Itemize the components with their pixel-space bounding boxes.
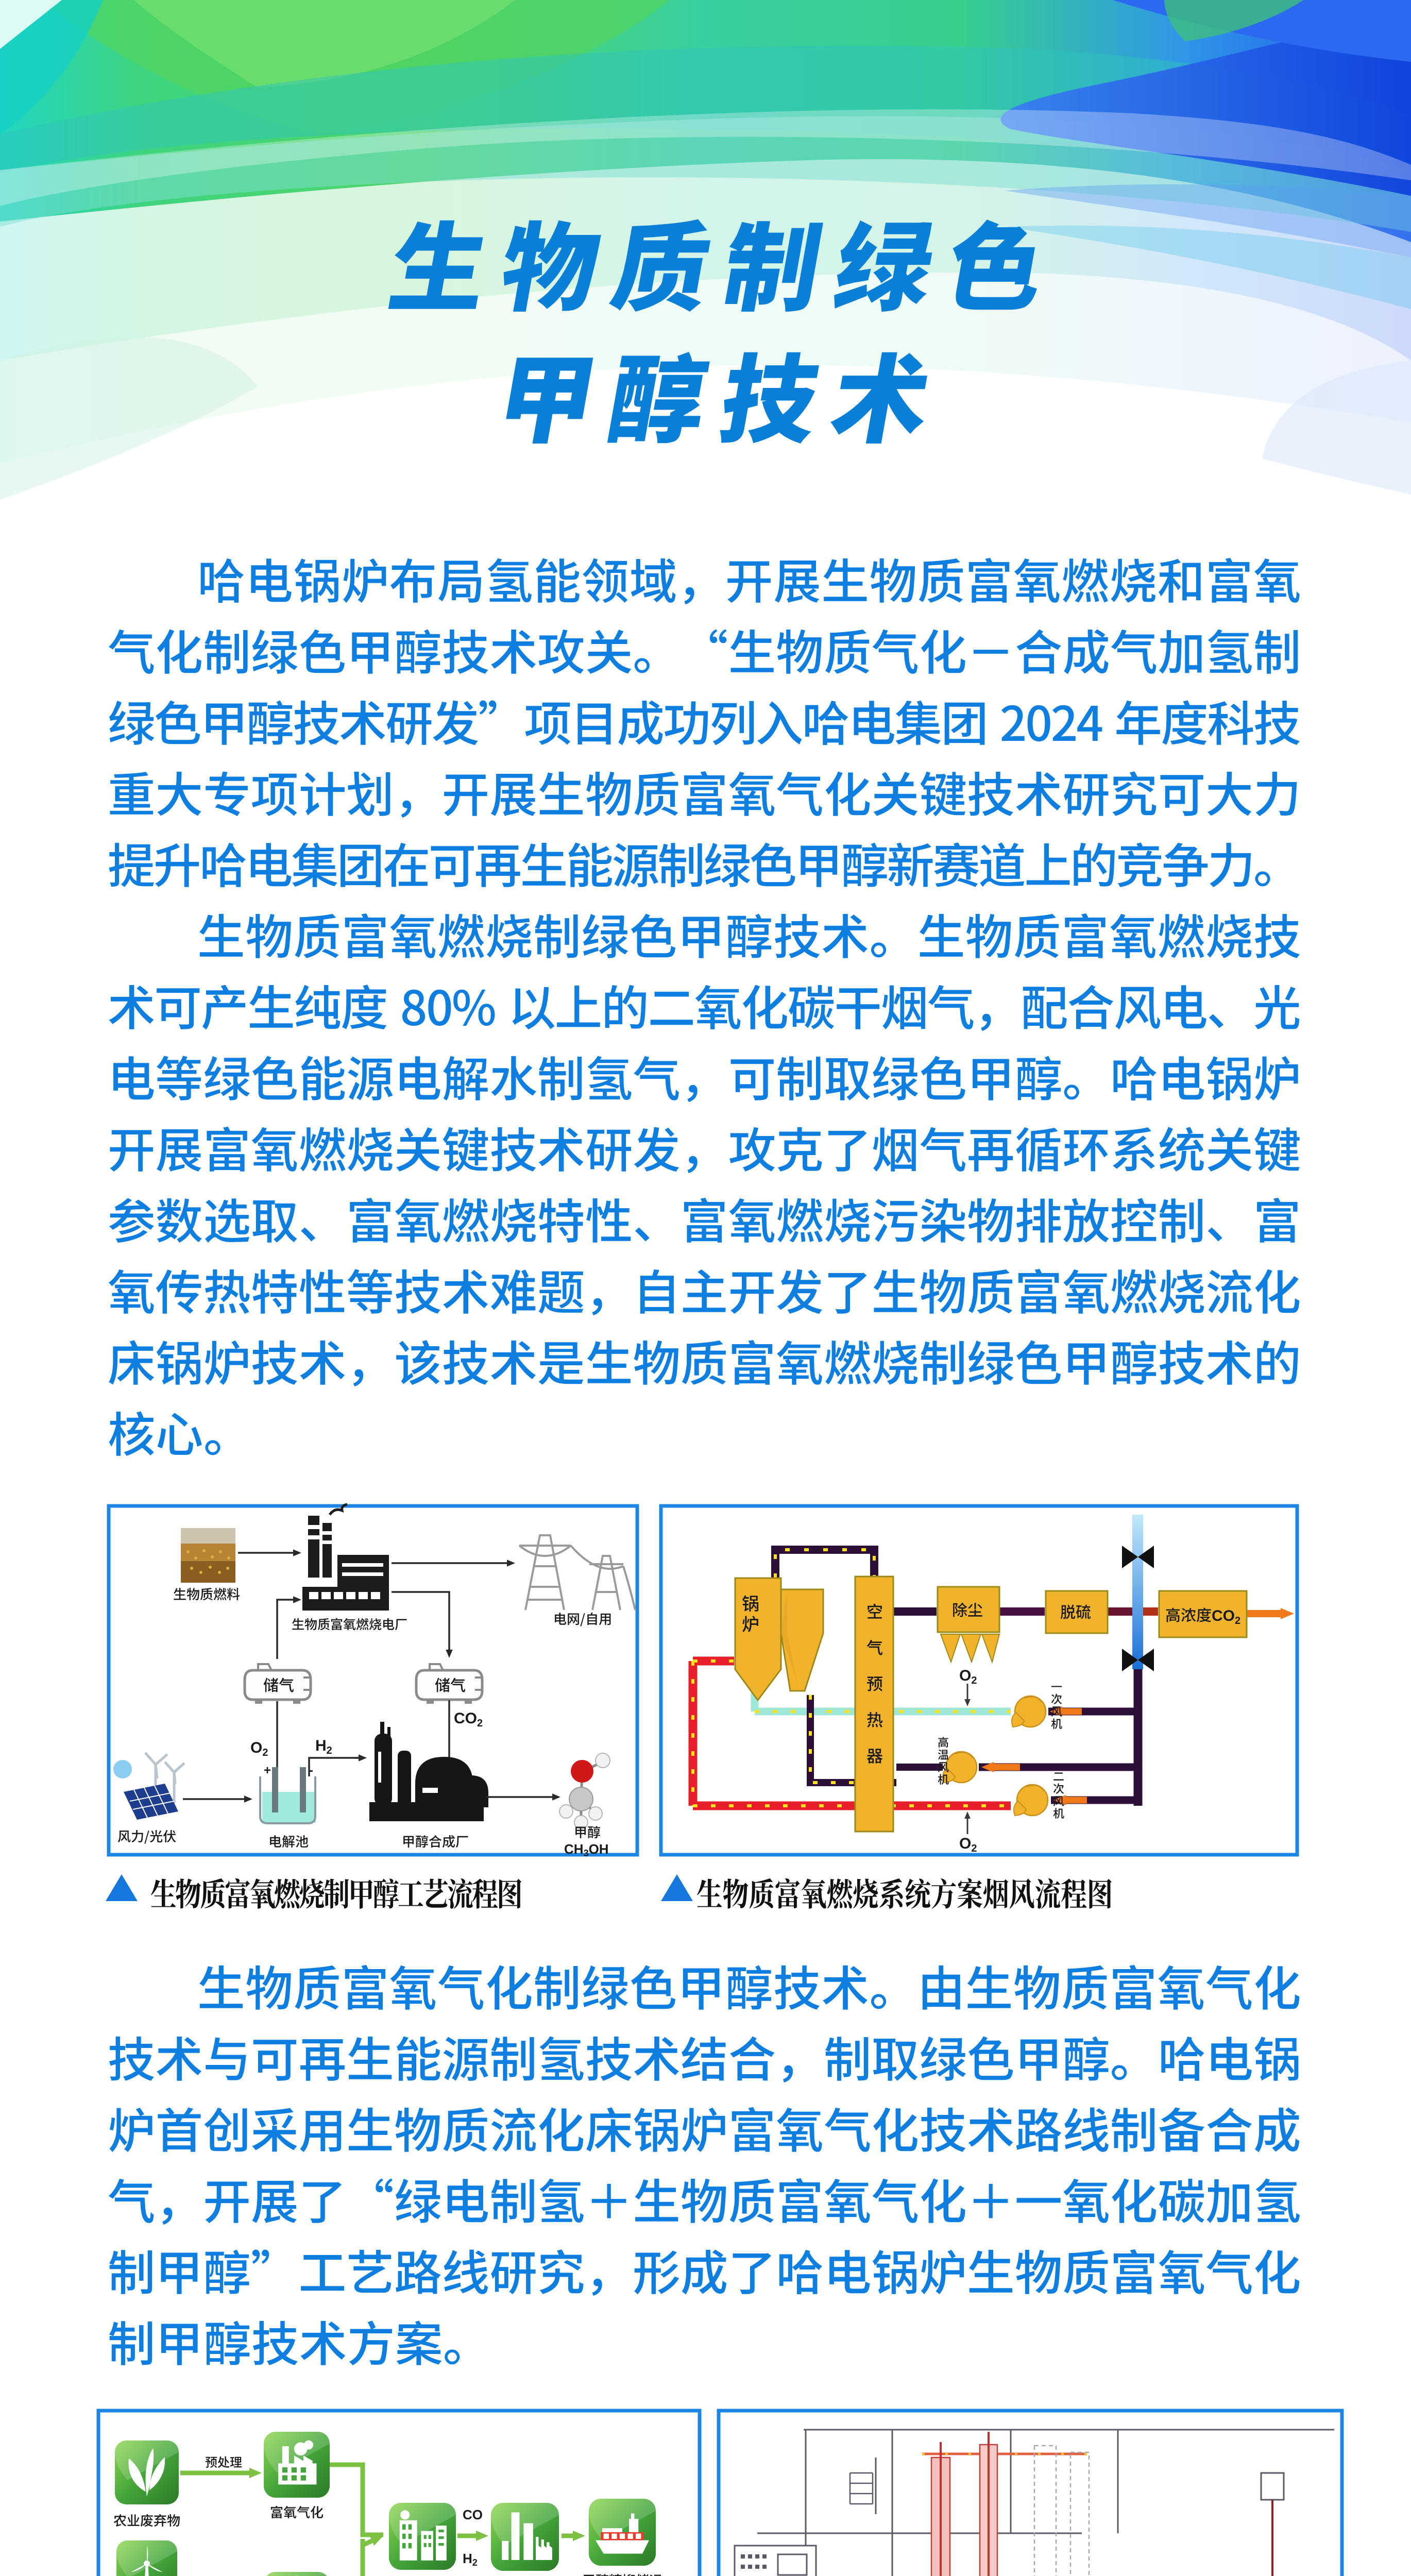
svg-text:-: - xyxy=(309,1764,313,1777)
svg-text:CO: CO xyxy=(463,2507,483,2522)
svg-text:+: + xyxy=(264,1764,271,1777)
